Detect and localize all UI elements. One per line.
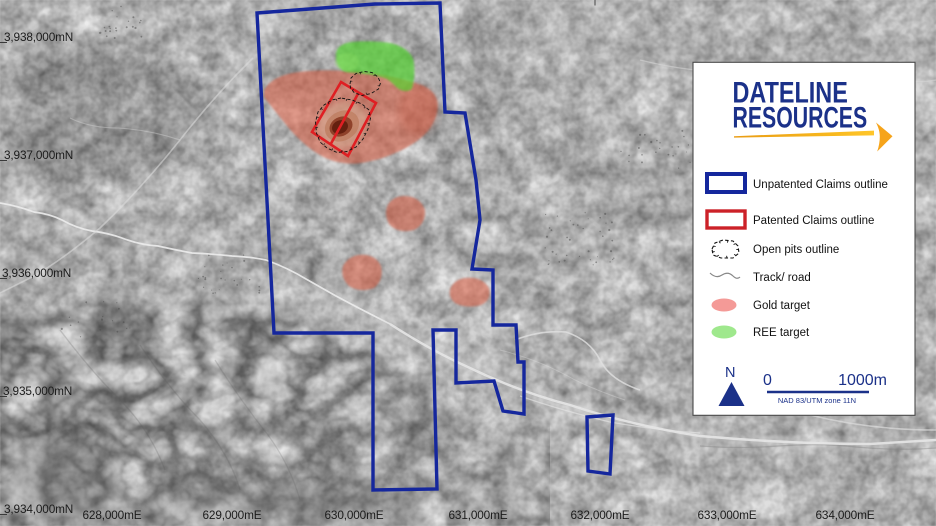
- svg-text:Track/ road: Track/ road: [753, 272, 811, 284]
- svg-text:Gold target: Gold target: [753, 300, 811, 312]
- svg-text:NAD 83/UTM zone 11N: NAD 83/UTM zone 11N: [778, 396, 856, 405]
- svg-text:631,000mE: 631,000mE: [449, 508, 508, 522]
- svg-text:3,936,000mN: 3,936,000mN: [2, 266, 71, 280]
- svg-text:628,000mE: 628,000mE: [83, 508, 142, 522]
- svg-text:630,000mE: 630,000mE: [325, 508, 384, 522]
- svg-text:Unpatented Claims outline: Unpatented Claims outline: [753, 179, 888, 191]
- svg-text:633,000mE: 633,000mE: [698, 508, 757, 522]
- svg-text:3,937,000mN: 3,937,000mN: [4, 148, 73, 162]
- svg-text:3,935,000mN: 3,935,000mN: [3, 384, 72, 398]
- svg-text:0: 0: [763, 372, 772, 389]
- svg-text:3,934,000mN: 3,934,000mN: [4, 502, 73, 516]
- svg-text:Patented Claims outline: Patented Claims outline: [753, 215, 874, 227]
- svg-text:632,000mE: 632,000mE: [571, 508, 630, 522]
- svg-text:REE target: REE target: [753, 327, 810, 339]
- svg-text:RESOURCES: RESOURCES: [733, 102, 868, 134]
- svg-text:3,938,000mN: 3,938,000mN: [4, 30, 73, 44]
- svg-text:634,000mE: 634,000mE: [816, 508, 875, 522]
- svg-text:N: N: [725, 365, 735, 381]
- svg-text:629,000mE: 629,000mE: [203, 508, 262, 522]
- svg-text:1000m: 1000m: [838, 372, 887, 389]
- svg-text:Open pits outline: Open pits outline: [753, 244, 839, 256]
